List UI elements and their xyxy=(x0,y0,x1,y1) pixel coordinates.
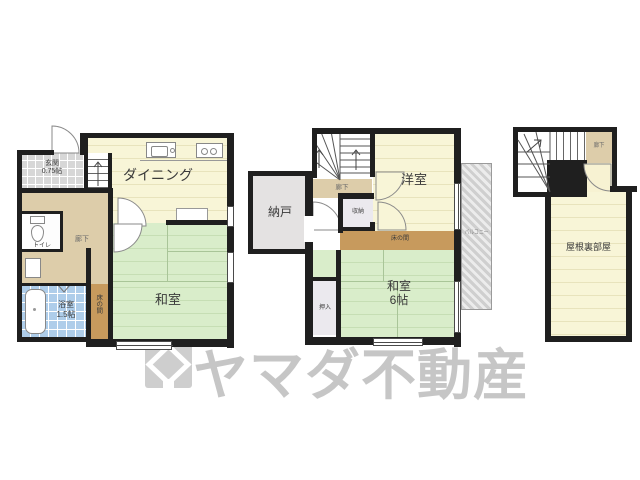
floor-plan: 玄関 0.75帖 ダイニング 廊下 トイレ 浴室 1.5帖 床の間 和室 xyxy=(0,0,640,480)
washitsu-label-1f: 和室 xyxy=(138,292,198,308)
attic-label: 屋根裏部屋 xyxy=(548,242,629,253)
wall xyxy=(17,150,54,155)
bath-label-line1: 浴室 xyxy=(46,300,86,310)
wall xyxy=(338,193,374,199)
window xyxy=(227,206,234,227)
oshiire-label: 押入 xyxy=(313,305,337,312)
kitchen-sink xyxy=(146,142,176,158)
hallway-label-3f: 廊下 xyxy=(588,143,610,150)
window-mullion xyxy=(458,282,459,332)
wall xyxy=(336,250,341,337)
washitsu-6jo-label: 和室 6帖 xyxy=(369,279,429,308)
wall xyxy=(17,188,112,193)
tatami-line xyxy=(167,251,227,252)
balcony-label: バルコニー xyxy=(463,230,489,237)
wall xyxy=(20,283,88,286)
kitchen-sink-basin xyxy=(151,146,168,157)
wall xyxy=(166,220,232,225)
kitchen-counter-edge xyxy=(140,160,228,161)
wall xyxy=(305,171,313,343)
tokonoma-label-2f: 床の間 xyxy=(385,236,415,243)
nando-door-opening xyxy=(304,216,314,242)
window xyxy=(454,183,461,230)
dining-label: ダイニング xyxy=(108,167,208,184)
window-mullion xyxy=(117,345,173,346)
bath-label-line2: 1.5帖 xyxy=(46,310,86,320)
window xyxy=(116,341,172,350)
entrance-door-arc xyxy=(52,126,79,153)
wall xyxy=(83,133,234,138)
hall-strip-1f xyxy=(90,250,110,284)
stove-burner xyxy=(210,148,217,155)
bathtub-drain xyxy=(33,308,36,311)
window xyxy=(454,281,461,333)
washbasin xyxy=(25,258,41,278)
straight-steps-3f xyxy=(550,132,585,162)
wall xyxy=(312,128,461,134)
staircase-2f xyxy=(312,128,373,182)
window xyxy=(227,252,234,283)
wall xyxy=(338,227,375,231)
wall xyxy=(17,337,91,342)
green-entry-strip-2f xyxy=(312,250,338,279)
bathtub xyxy=(25,289,46,334)
yoshitsu-label: 洋室 xyxy=(389,172,439,188)
wall xyxy=(108,248,113,340)
hallway-label-1f: 廊下 xyxy=(70,236,94,244)
wall xyxy=(610,186,637,192)
kitchen-sink-tap xyxy=(170,148,175,153)
wall xyxy=(17,150,22,342)
bath-label: 浴室 1.5帖 xyxy=(46,300,86,319)
wall xyxy=(370,133,375,177)
attic-room xyxy=(545,192,632,342)
attic-door-area xyxy=(587,163,612,192)
hallway-label-2f: 廊下 xyxy=(330,184,354,192)
kitchen-stove xyxy=(196,143,223,158)
wall xyxy=(86,248,91,340)
door-vestibule-2f xyxy=(312,198,340,234)
tokonoma-label-1f: 床の間 xyxy=(94,294,102,314)
washitsu-6jo-line2: 6帖 xyxy=(369,293,429,307)
stove-burner xyxy=(201,148,208,155)
wall xyxy=(312,277,338,281)
window-mullion xyxy=(458,184,459,229)
toilet-label: トイレ xyxy=(26,243,58,250)
nando-label: 納戸 xyxy=(255,205,305,219)
wall xyxy=(227,133,234,348)
wall xyxy=(108,188,113,252)
toilet-tank xyxy=(30,216,45,224)
tatami-line xyxy=(383,250,384,282)
entrance-label: 玄関 0.75帖 xyxy=(24,160,80,177)
watermark-text: ヤマダ不動産 xyxy=(193,330,529,410)
closet-label-2f: 収納 xyxy=(345,209,371,216)
tatami-line xyxy=(167,223,168,282)
washitsu-6jo-line1: 和室 xyxy=(369,279,429,293)
stair-void-3f xyxy=(547,160,587,197)
entrance-label-line2: 0.75帖 xyxy=(24,168,80,176)
